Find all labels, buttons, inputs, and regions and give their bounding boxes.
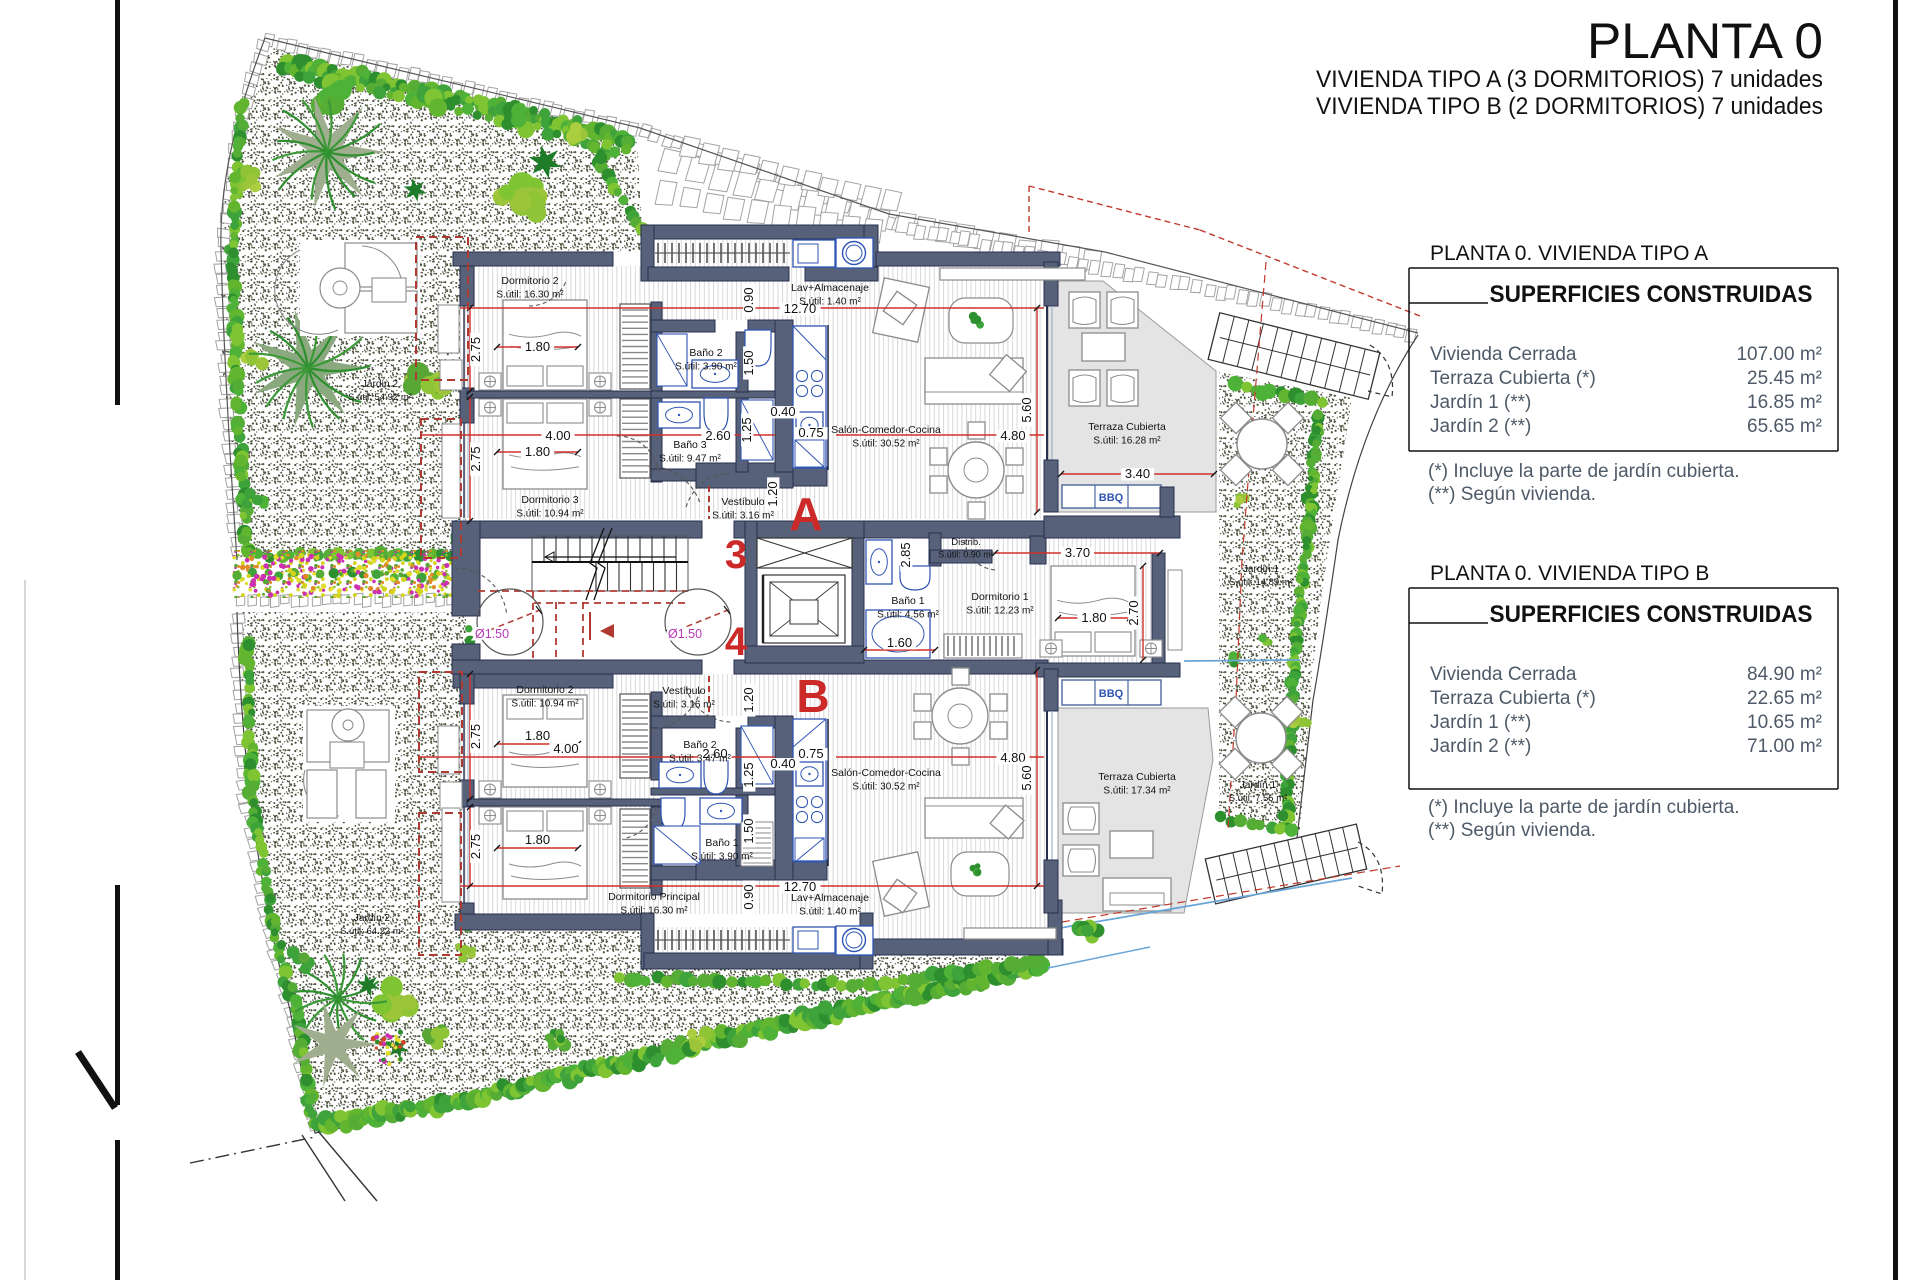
svg-text:25.45 m²: 25.45 m² — [1747, 368, 1822, 389]
svg-text:84.90 m²: 84.90 m² — [1747, 664, 1822, 685]
svg-text:Jardín 1 (**): Jardín 1 (**) — [1430, 712, 1531, 733]
svg-text:Salón-Comedor-Cocina: Salón-Comedor-Cocina — [831, 767, 941, 779]
svg-text:3: 3 — [725, 533, 747, 577]
svg-text:4.80: 4.80 — [1000, 428, 1025, 443]
svg-text:Jardín 1: Jardín 1 — [1240, 780, 1277, 791]
svg-text:S.útil: 1.40 m²: S.útil: 1.40 m² — [799, 907, 861, 918]
svg-text:0.40: 0.40 — [770, 756, 795, 771]
svg-text:S.útil: 14.89 m²: S.útil: 14.89 m² — [1229, 577, 1293, 588]
svg-text:Dormitorio 2: Dormitorio 2 — [501, 275, 558, 287]
svg-text:BBQ: BBQ — [1099, 688, 1124, 700]
svg-text:2.75: 2.75 — [468, 446, 483, 471]
svg-text:S.útil: 3.90 m²: S.útil: 3.90 m² — [691, 852, 753, 863]
svg-text:B: B — [796, 670, 829, 722]
svg-text:2.85: 2.85 — [898, 542, 913, 567]
svg-text:Terraza Cubierta: Terraza Cubierta — [1088, 421, 1166, 433]
svg-text:S.útil: 3.90 m²: S.útil: 3.90 m² — [675, 362, 737, 373]
svg-text:Jardín 1: Jardín 1 — [1243, 564, 1280, 575]
svg-text:65.65 m²: 65.65 m² — [1747, 416, 1822, 437]
svg-text:0.90: 0.90 — [741, 884, 756, 909]
svg-text:5.60: 5.60 — [1019, 765, 1034, 790]
svg-text:1.80: 1.80 — [525, 339, 550, 354]
svg-text:Terraza Cubierta: Terraza Cubierta — [1098, 771, 1176, 783]
svg-text:VIVIENDA TIPO A (3 DORMITORIOS: VIVIENDA TIPO A (3 DORMITORIOS) 7 unidad… — [1316, 66, 1823, 93]
svg-text:S.útil: 10.94 m²: S.útil: 10.94 m² — [516, 509, 584, 520]
svg-text:3.40: 3.40 — [1125, 466, 1150, 481]
svg-text:2.70: 2.70 — [1126, 600, 1141, 625]
svg-text:S.útil: 54.92 m²: S.útil: 54.92 m² — [348, 392, 412, 403]
svg-text:107.00 m²: 107.00 m² — [1736, 344, 1822, 365]
svg-text:0.90: 0.90 — [741, 287, 756, 312]
svg-text:4: 4 — [725, 620, 748, 664]
svg-text:71.00 m²: 71.00 m² — [1747, 736, 1822, 757]
svg-text:Baño 1: Baño 1 — [891, 595, 924, 607]
svg-text:4.00: 4.00 — [553, 741, 578, 756]
svg-text:Vestíbulo: Vestíbulo — [721, 496, 764, 508]
svg-text:S.útil: 17.34 m²: S.útil: 17.34 m² — [1103, 786, 1171, 797]
svg-text:1.25: 1.25 — [741, 762, 756, 787]
svg-text:S.útil: 4.56 m²: S.útil: 4.56 m² — [877, 610, 939, 621]
svg-text:1.20: 1.20 — [765, 481, 780, 506]
svg-text:Jardín 2: Jardín 2 — [362, 379, 399, 390]
svg-text:1.80: 1.80 — [525, 444, 550, 459]
svg-text:Jardín 2: Jardín 2 — [354, 913, 391, 924]
svg-text:S.útil: 0.90 m²: S.útil: 0.90 m² — [938, 550, 994, 560]
svg-text:(**) Según vivienda.: (**) Según vivienda. — [1428, 820, 1596, 841]
svg-text:S.útil: 9.47 m²: S.útil: 9.47 m² — [659, 454, 721, 465]
svg-text:S.útil: 64.22 m²: S.útil: 64.22 m² — [340, 926, 404, 937]
svg-text:PLANTA 0. VIVIENDA TIPO B: PLANTA 0. VIVIENDA TIPO B — [1430, 562, 1709, 585]
svg-text:2.75: 2.75 — [468, 724, 483, 749]
svg-text:Salón-Comedor-Cocina: Salón-Comedor-Cocina — [831, 424, 941, 436]
svg-text:PLANTA 0. VIVIENDA TIPO A: PLANTA 0. VIVIENDA TIPO A — [1430, 242, 1708, 265]
svg-text:S.útil: 16.28 m²: S.útil: 16.28 m² — [1093, 436, 1161, 447]
svg-text:Distrib.: Distrib. — [951, 537, 981, 548]
svg-text:Jardín 1 (**): Jardín 1 (**) — [1430, 392, 1531, 413]
svg-text:5.60: 5.60 — [1019, 397, 1034, 422]
svg-text:Lav+Almacenaje: Lav+Almacenaje — [791, 892, 869, 904]
svg-text:16.85 m²: 16.85 m² — [1747, 392, 1822, 413]
svg-text:Baño 2: Baño 2 — [683, 739, 716, 751]
svg-text:Vestíbulo: Vestíbulo — [662, 685, 705, 697]
svg-text:Dormitorio 1: Dormitorio 1 — [971, 591, 1028, 603]
svg-text:S.útil: 16.30 m²: S.útil: 16.30 m² — [496, 290, 564, 301]
svg-text:1.60: 1.60 — [887, 635, 912, 650]
svg-text:2.75: 2.75 — [468, 337, 483, 362]
svg-text:0.75: 0.75 — [798, 746, 823, 761]
svg-text:S.útil: 30.52 m²: S.útil: 30.52 m² — [852, 439, 920, 450]
svg-text:S.útil: 7.55 m²: S.útil: 7.55 m² — [1229, 793, 1288, 804]
svg-text:Ø1.50: Ø1.50 — [668, 627, 702, 641]
svg-text:(**) Según vivienda.: (**) Según vivienda. — [1428, 484, 1596, 505]
svg-text:Terraza Cubierta (*): Terraza Cubierta (*) — [1430, 688, 1596, 709]
svg-text:S.útil: 30.52 m²: S.útil: 30.52 m² — [852, 782, 920, 793]
svg-text:0.75: 0.75 — [798, 425, 823, 440]
svg-text:1.25: 1.25 — [739, 417, 754, 442]
svg-text:S.útil: 12.23 m²: S.útil: 12.23 m² — [966, 606, 1034, 617]
svg-text:2.60: 2.60 — [705, 428, 730, 443]
svg-text:(*) Incluye la parte de jardí: (*) Incluye la parte de jardín cubierta. — [1428, 461, 1740, 482]
svg-text:3.70: 3.70 — [1065, 545, 1090, 560]
svg-text:Terraza Cubierta (*): Terraza Cubierta (*) — [1430, 368, 1596, 389]
svg-text:S.útil: 3.16 m²: S.útil: 3.16 m² — [653, 700, 715, 711]
svg-text:Ø1.50: Ø1.50 — [475, 627, 509, 641]
svg-text:Baño 3: Baño 3 — [673, 439, 706, 451]
svg-text:BBQ: BBQ — [1099, 492, 1124, 504]
svg-text:1.80: 1.80 — [1081, 610, 1106, 625]
svg-text:Dormitorio 2: Dormitorio 2 — [516, 684, 573, 696]
svg-text:Dormitorio 3: Dormitorio 3 — [521, 494, 578, 506]
svg-text:Jardín 2 (**): Jardín 2 (**) — [1430, 416, 1531, 437]
svg-text:Vivienda Cerrada: Vivienda Cerrada — [1430, 344, 1577, 365]
svg-text:SUPERFICIES CONSTRUIDAS: SUPERFICIES CONSTRUIDAS — [1490, 601, 1813, 628]
svg-text:PLANTA 0: PLANTA 0 — [1587, 13, 1823, 69]
svg-text:1.80: 1.80 — [525, 832, 550, 847]
svg-text:Lav+Almacenaje: Lav+Almacenaje — [791, 282, 869, 294]
svg-text:2.75: 2.75 — [468, 834, 483, 859]
svg-text:S.útil: 3.16 m²: S.útil: 3.16 m² — [712, 511, 774, 522]
svg-text:A: A — [789, 488, 822, 540]
svg-text:1.50: 1.50 — [741, 350, 756, 375]
svg-text:S.útil: 1.40 m²: S.útil: 1.40 m² — [799, 297, 861, 308]
svg-text:1.50: 1.50 — [741, 818, 756, 843]
svg-text:Jardín 2 (**): Jardín 2 (**) — [1430, 736, 1531, 757]
svg-text:4.00: 4.00 — [545, 428, 570, 443]
svg-text:Baño 2: Baño 2 — [689, 347, 722, 359]
svg-text:(*) Incluye la parte de jardí: (*) Incluye la parte de jardín cubierta. — [1428, 797, 1740, 818]
svg-text:S.útil: 16.30 m²: S.útil: 16.30 m² — [620, 906, 688, 917]
svg-text:1.80: 1.80 — [525, 728, 550, 743]
svg-text:Dormitorio Principal: Dormitorio Principal — [608, 891, 700, 903]
svg-text:22.65 m²: 22.65 m² — [1747, 688, 1822, 709]
svg-text:S.útil: 3.47 m²: S.útil: 3.47 m² — [669, 754, 731, 765]
svg-text:1.20: 1.20 — [741, 687, 756, 712]
svg-text:0.40: 0.40 — [770, 404, 795, 419]
svg-text:10.65 m²: 10.65 m² — [1747, 712, 1822, 733]
svg-text:S.útil: 10.94 m²: S.útil: 10.94 m² — [511, 699, 579, 710]
svg-text:Vivienda Cerrada: Vivienda Cerrada — [1430, 664, 1577, 685]
svg-text:Baño 1: Baño 1 — [705, 837, 738, 849]
svg-text:SUPERFICIES CONSTRUIDAS: SUPERFICIES CONSTRUIDAS — [1490, 281, 1813, 308]
svg-text:VIVIENDA TIPO B (2 DORMITORIOS: VIVIENDA TIPO B (2 DORMITORIOS) 7 unidad… — [1316, 93, 1823, 120]
